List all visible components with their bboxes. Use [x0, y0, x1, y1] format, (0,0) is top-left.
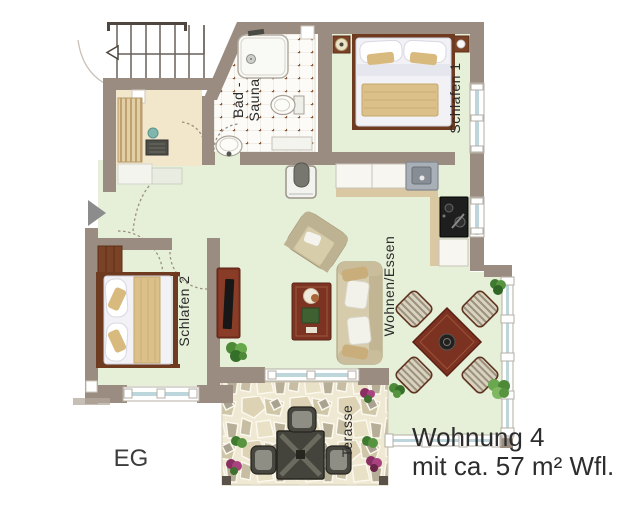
bedroom1-window	[470, 83, 484, 153]
floor-level-label: EG	[114, 445, 149, 472]
stove	[440, 197, 468, 237]
terrace-post	[379, 476, 388, 485]
sofa	[337, 262, 382, 364]
kitchen-window	[470, 197, 484, 237]
caption-line2: mit ca. 57 m² Wfl.	[412, 451, 614, 481]
bedroom2-label: Schlafen 2	[176, 275, 192, 346]
tv-sideboard	[217, 268, 240, 338]
double-bed	[96, 272, 180, 368]
stair-direction-arrow-icon	[107, 46, 118, 59]
kitchen-cabinet	[439, 239, 468, 266]
terrace-label: Terasse	[339, 405, 355, 458]
floor-plan: Bad - Sauna Schlafen 1 Schlafen 2 Wohnen…	[0, 0, 640, 510]
bedroom2-window	[123, 387, 199, 401]
hall-cabinet	[118, 164, 152, 184]
staircase	[78, 22, 204, 83]
living-label: Wohnen/Essen	[381, 236, 397, 337]
shower	[238, 29, 288, 78]
caption-line1: Wohnung 4	[412, 422, 545, 452]
sauna-bucket	[148, 128, 158, 138]
caption: Wohnung 4 mit ca. 57 m² Wfl.	[412, 422, 614, 481]
terrace-chair	[251, 446, 276, 474]
hall-cabinet	[152, 168, 182, 184]
blanket	[134, 277, 160, 363]
shaft-niche	[301, 26, 314, 39]
washbasin	[216, 136, 242, 157]
building-door-swing	[78, 40, 104, 83]
pillow	[344, 280, 370, 310]
coffee-table	[292, 283, 331, 340]
terrace-sliding-door	[265, 369, 359, 381]
shaft-niche	[86, 381, 97, 392]
terrace-chair	[288, 407, 316, 432]
double-bed	[352, 34, 455, 130]
terrace-table	[277, 431, 324, 479]
kitchen-sink	[406, 162, 438, 190]
toilet	[271, 96, 304, 115]
sauna-bench	[118, 98, 142, 162]
floor-plan-page: Bad - Sauna Schlafen 1 Schlafen 2 Wohnen…	[0, 0, 640, 510]
terrace-post	[222, 476, 231, 485]
watermark	[73, 398, 110, 405]
bath-label-line1: Bad -	[230, 82, 246, 118]
pillow	[347, 316, 372, 345]
bath-cabinet	[272, 137, 312, 150]
wintergarden-glass-right	[501, 277, 514, 438]
bath-label-line2: Sauna	[246, 79, 262, 122]
wardrobe	[98, 246, 122, 274]
bedroom1-label: Schlafen 1	[447, 62, 463, 133]
tiled-oven	[286, 163, 316, 198]
